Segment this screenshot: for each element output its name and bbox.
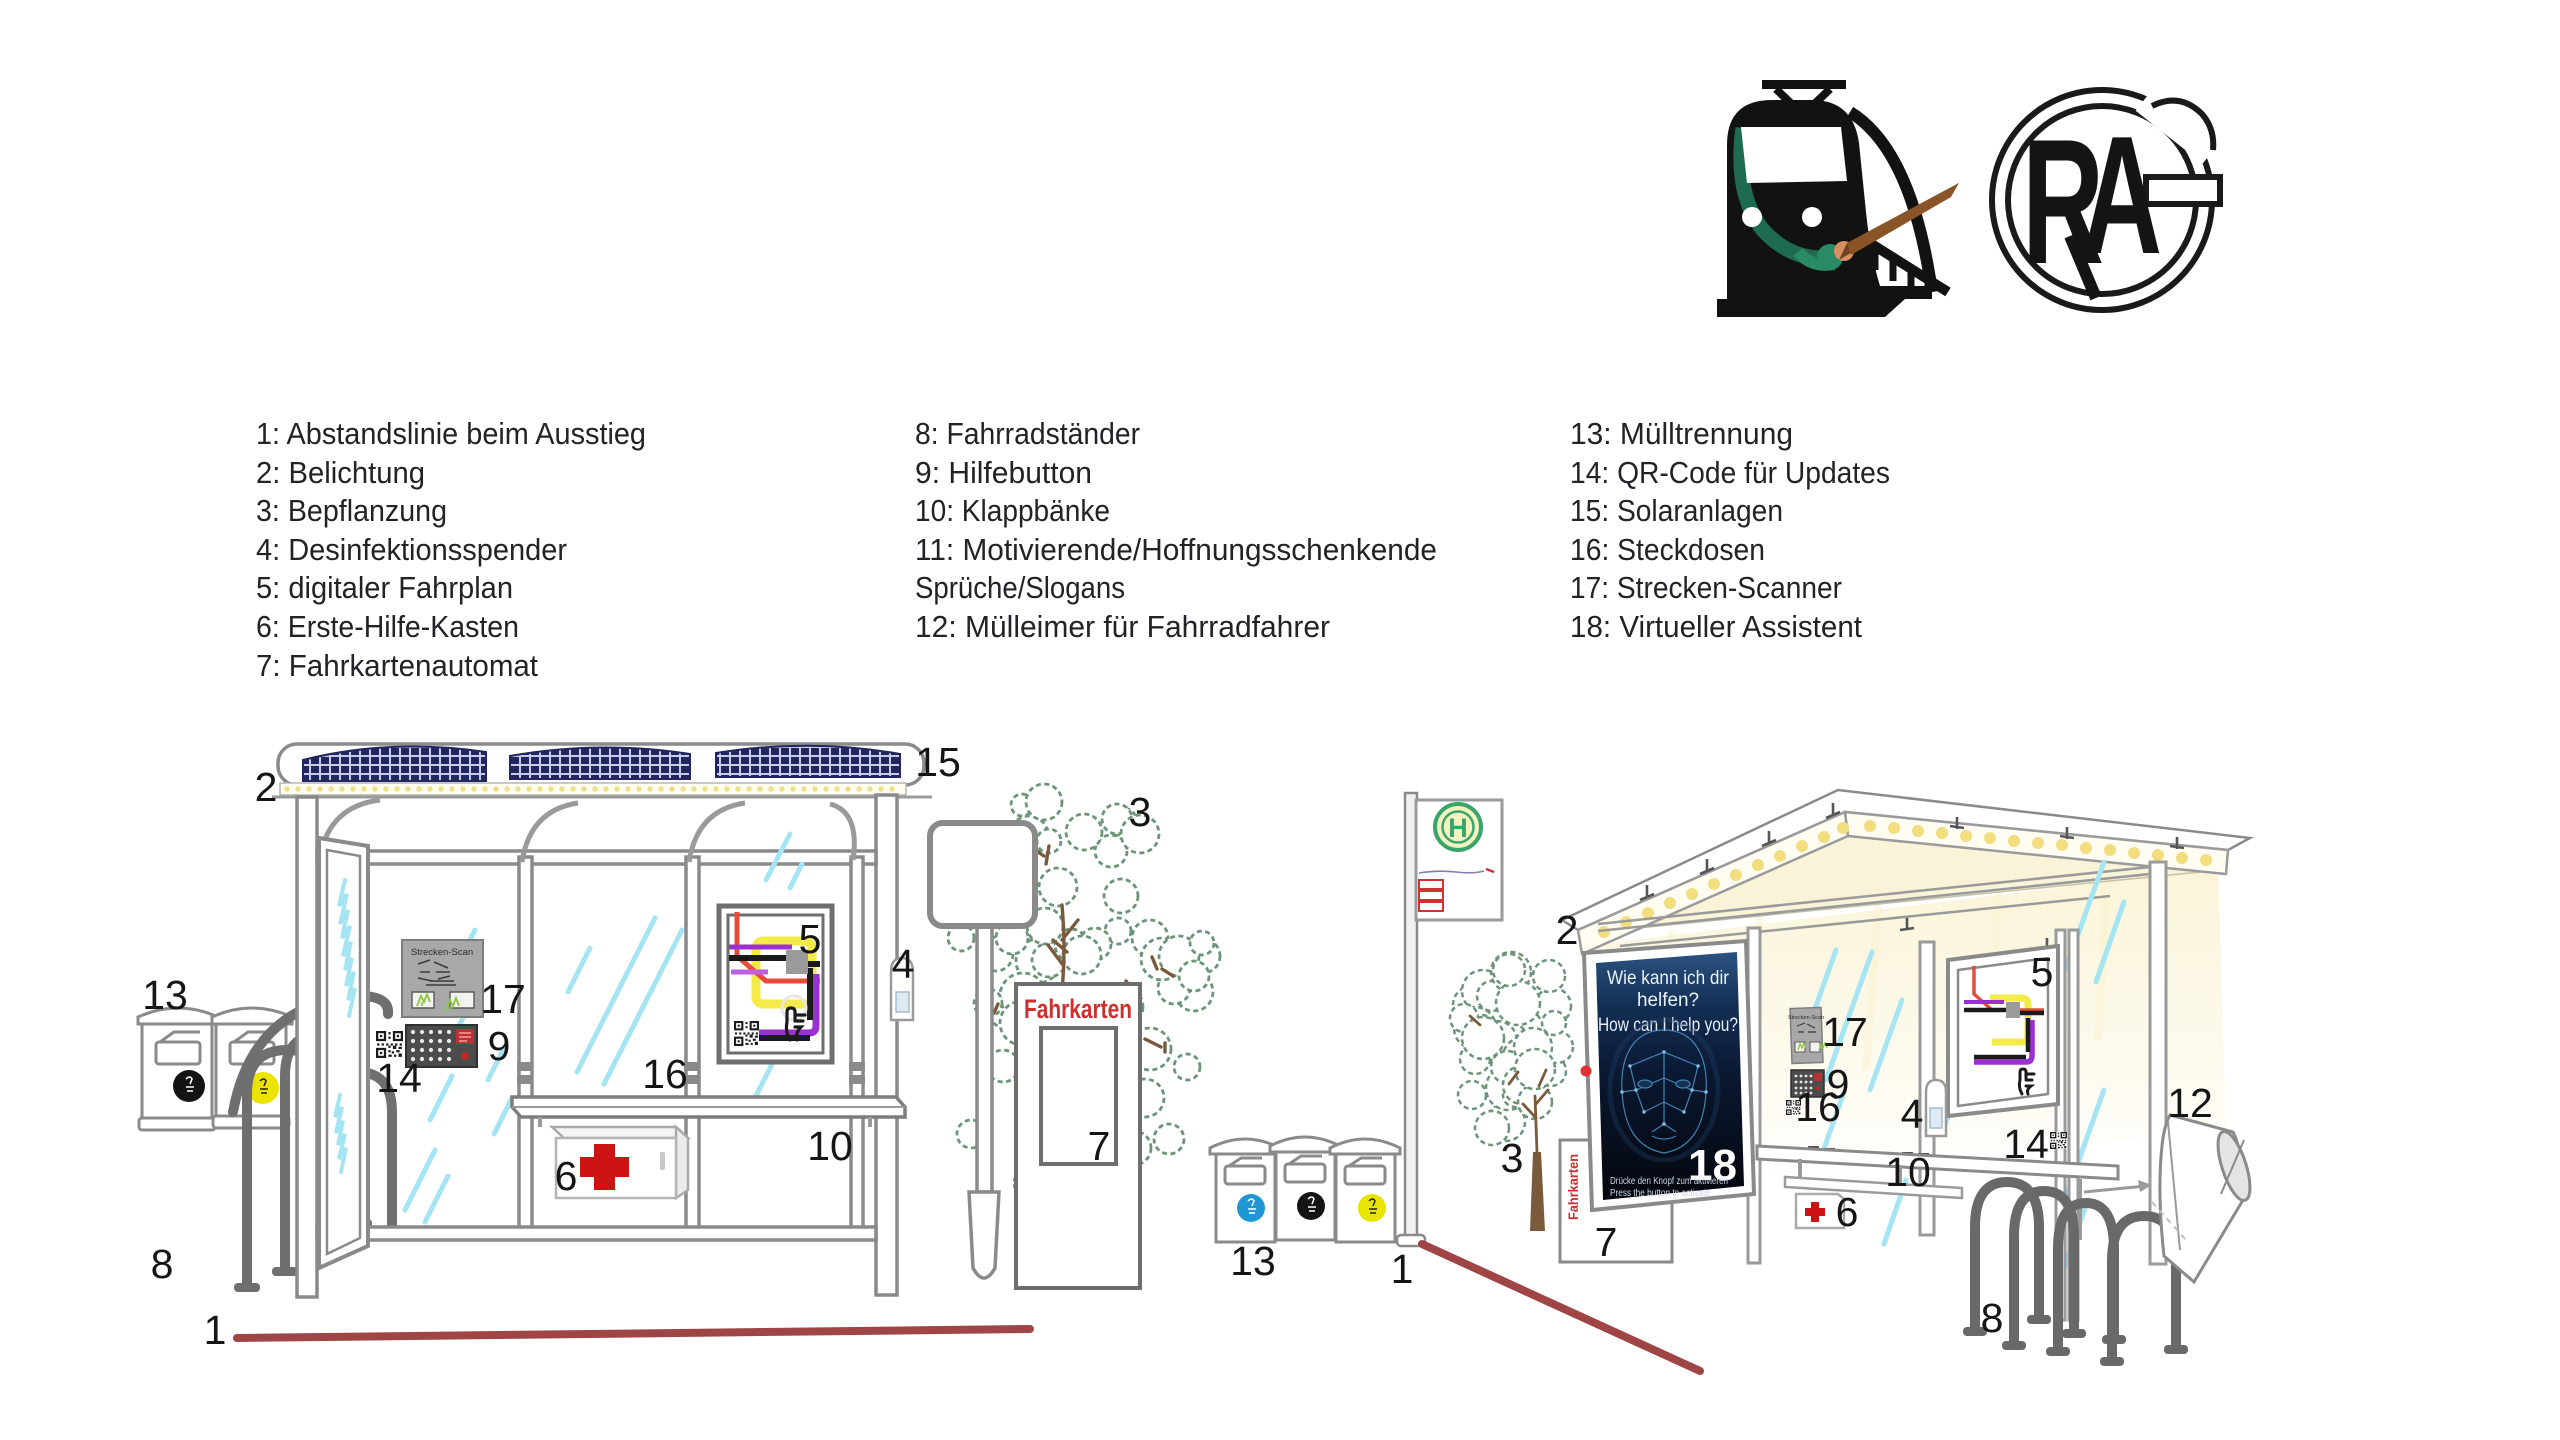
svg-text:5: 5 — [799, 916, 822, 962]
svg-text:5: 5 — [2031, 949, 2054, 995]
svg-text:1: Abstandslinie beim Ausstieg: 1: Abstandslinie beim Ausstieg — [256, 416, 646, 451]
svg-text:14: 14 — [2003, 1121, 2049, 1167]
svg-text:7: Fahrkartenautomat: 7: Fahrkartenautomat — [256, 648, 538, 683]
svg-text:4: Desinfektionsspender: 4: Desinfektionsspender — [256, 532, 567, 567]
svg-text:Sprüche/Slogans: Sprüche/Slogans — [915, 570, 1125, 605]
svg-text:6: 6 — [555, 1153, 578, 1199]
svg-text:16: 16 — [1795, 1084, 1841, 1130]
svg-text:13: 13 — [142, 972, 188, 1018]
svg-text:A: A — [2082, 101, 2162, 289]
svg-text:1: 1 — [1391, 1246, 1414, 1292]
svg-text:10: 10 — [1885, 1149, 1931, 1195]
svg-text:Fahrkarten: Fahrkarten — [1024, 994, 1132, 1024]
svg-text:13: Mülltrennung: 13: Mülltrennung — [1570, 416, 1793, 451]
svg-text:3: 3 — [1501, 1135, 1524, 1181]
svg-text:8: 8 — [151, 1241, 174, 1287]
svg-text:16: Steckdosen: 16: Steckdosen — [1570, 532, 1765, 567]
svg-text:13: 13 — [1230, 1238, 1276, 1284]
svg-text:15: 15 — [915, 739, 961, 785]
svg-text:8: Fahrradständer: 8: Fahrradständer — [915, 416, 1140, 451]
svg-text:16: 16 — [642, 1051, 688, 1097]
svg-text:helfen?: helfen? — [1637, 990, 1699, 1011]
svg-text:12: 12 — [2167, 1080, 2213, 1126]
svg-text:Strecken-Scan: Strecken-Scan — [411, 947, 473, 958]
svg-text:3: Bepflanzung: 3: Bepflanzung — [256, 493, 447, 528]
svg-text:Strecken-Scan: Strecken-Scan — [1788, 1015, 1824, 1021]
svg-text:2: 2 — [255, 764, 278, 810]
svg-text:Wie kann ich dir: Wie kann ich dir — [1607, 968, 1730, 989]
svg-text:3: 3 — [1129, 789, 1152, 835]
svg-text:12: Mülleimer für Fahrradfahre: 12: Mülleimer für Fahrradfahrer — [915, 609, 1330, 644]
svg-text:2: Belichtung: 2: Belichtung — [256, 455, 425, 490]
svg-text:8: 8 — [1981, 1295, 2004, 1341]
svg-text:7: 7 — [1088, 1123, 1111, 1169]
svg-text:7: 7 — [1595, 1219, 1618, 1265]
svg-text:18: Virtueller Assistent: 18: Virtueller Assistent — [1570, 609, 1862, 644]
svg-text:17: Strecken-Scanner: 17: Strecken-Scanner — [1570, 570, 1842, 605]
svg-text:6: Erste-Hilfe-Kasten: 6: Erste-Hilfe-Kasten — [256, 609, 519, 644]
svg-text:15: Solaranlagen: 15: Solaranlagen — [1570, 493, 1783, 528]
svg-text:9: Hilfebutton: 9: Hilfebutton — [915, 455, 1092, 490]
svg-text:4: 4 — [892, 941, 915, 987]
svg-text:1: 1 — [204, 1307, 227, 1353]
svg-text:17: 17 — [1822, 1009, 1868, 1055]
svg-text:17: 17 — [480, 976, 526, 1022]
svg-text:Fahrkarten: Fahrkarten — [1565, 1154, 1581, 1220]
svg-text:H: H — [1448, 813, 1468, 843]
svg-text:5: digitaler Fahrplan: 5: digitaler Fahrplan — [256, 570, 513, 605]
svg-text:2: 2 — [1556, 907, 1579, 953]
svg-text:11: Motivierende/Hoffnungssche: 11: Motivierende/Hoffnungsschenkende — [915, 532, 1437, 567]
svg-text:6: 6 — [1836, 1189, 1859, 1235]
svg-text:9: 9 — [488, 1023, 511, 1069]
svg-text:10: 10 — [807, 1123, 853, 1169]
svg-text:14: 14 — [376, 1055, 422, 1101]
svg-text:10: Klappbänke: 10: Klappbänke — [915, 493, 1110, 528]
svg-text:4: 4 — [1901, 1091, 1924, 1137]
svg-text:14: QR-Code für Updates: 14: QR-Code für Updates — [1570, 455, 1890, 490]
